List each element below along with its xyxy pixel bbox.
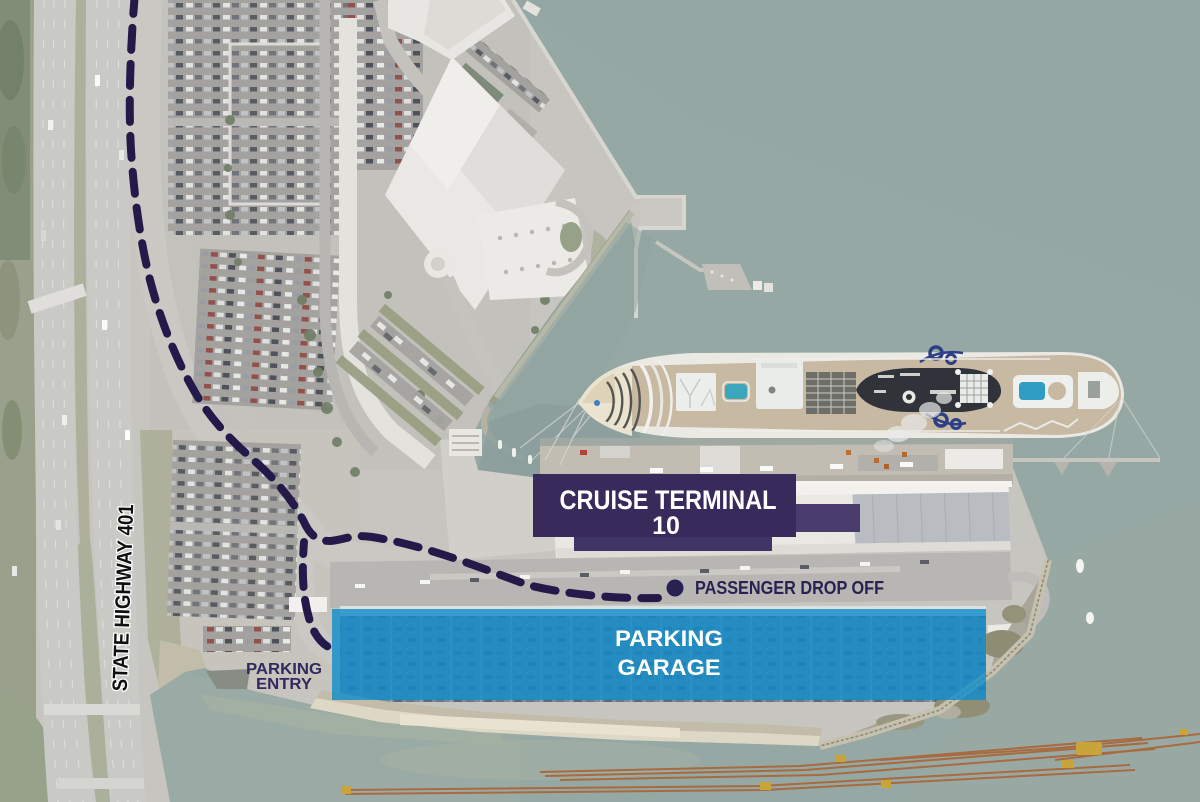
svg-text:PARKING: PARKING (615, 626, 723, 651)
svg-text:ENTRY: ENTRY (256, 676, 313, 693)
svg-text:10: 10 (652, 512, 680, 540)
svg-text:CRUISE TERMINAL: CRUISE TERMINAL (560, 485, 777, 515)
svg-text:GARAGE: GARAGE (618, 655, 721, 680)
svg-text:PASSENGER DROP OFF: PASSENGER DROP OFF (695, 578, 884, 598)
